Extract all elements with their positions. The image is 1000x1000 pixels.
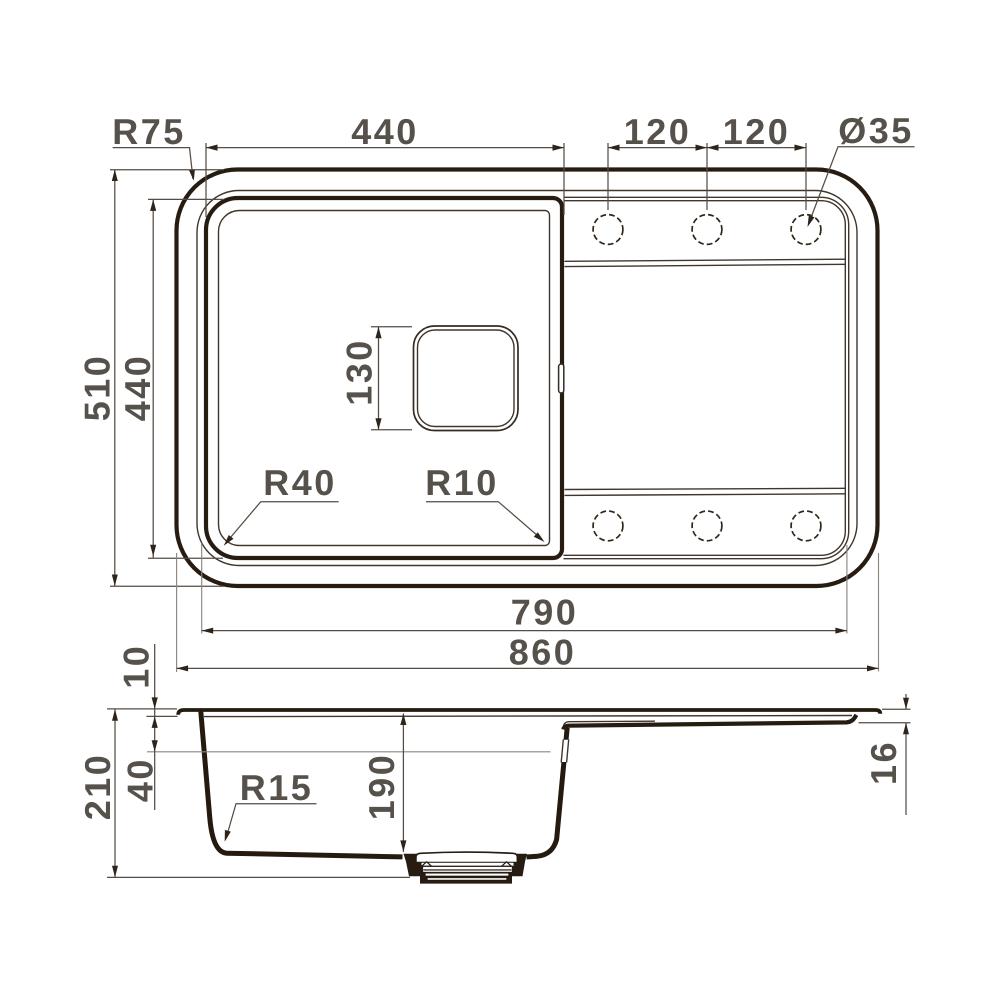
svg-text:R40: R40 <box>263 462 337 503</box>
svg-text:440: 440 <box>117 354 158 422</box>
svg-text:510: 510 <box>77 354 118 422</box>
svg-text:R10: R10 <box>425 462 499 503</box>
svg-text:Ø35: Ø35 <box>838 110 914 151</box>
svg-text:130: 130 <box>339 338 380 406</box>
svg-text:R75: R75 <box>112 111 186 152</box>
svg-text:790: 790 <box>511 592 579 633</box>
svg-text:10: 10 <box>115 644 156 689</box>
svg-text:120: 120 <box>624 111 692 152</box>
svg-text:16: 16 <box>863 740 904 785</box>
svg-text:860: 860 <box>509 632 577 673</box>
svg-text:440: 440 <box>351 111 419 152</box>
svg-text:120: 120 <box>723 111 791 152</box>
svg-text:190: 190 <box>361 753 402 821</box>
svg-text:R15: R15 <box>240 767 314 808</box>
svg-text:210: 210 <box>77 753 118 821</box>
svg-text:40: 40 <box>120 757 161 802</box>
